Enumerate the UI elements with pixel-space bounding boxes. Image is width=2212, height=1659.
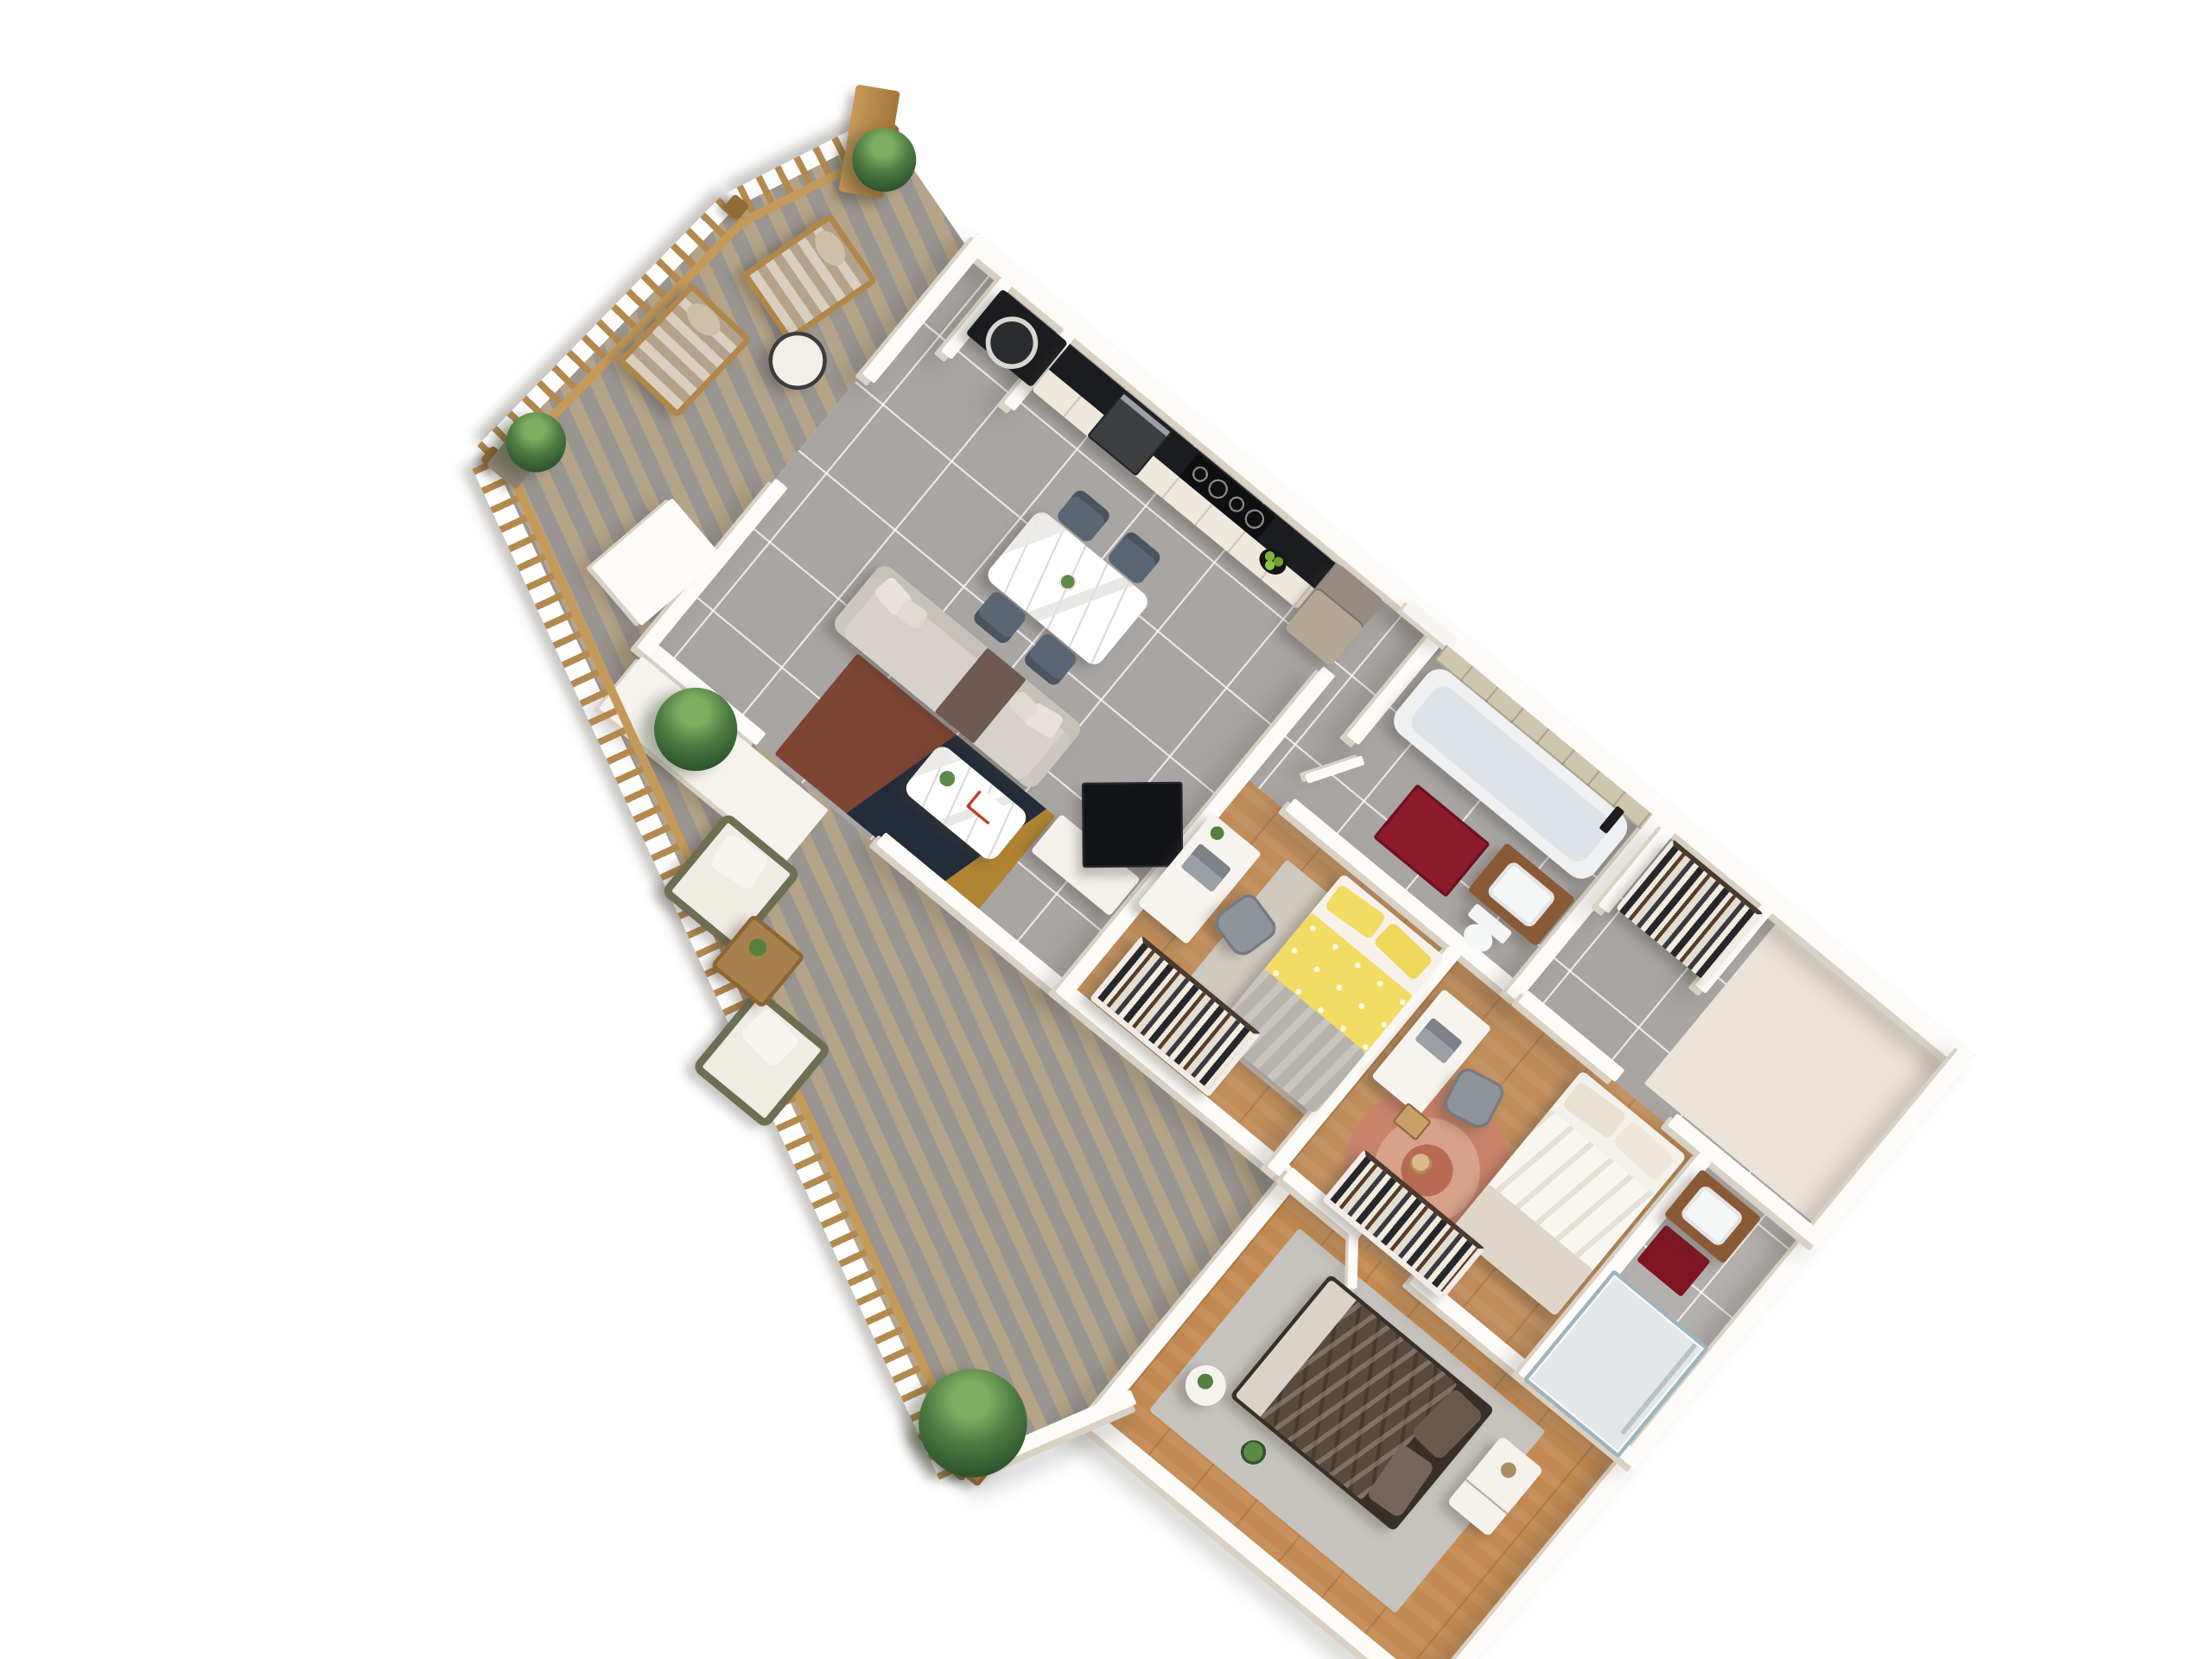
tv [1082, 782, 1183, 868]
apartment-plan [166, 69, 2007, 1659]
floor-plan-render [0, 0, 2212, 1659]
master-door-leaf [1347, 1229, 1358, 1289]
